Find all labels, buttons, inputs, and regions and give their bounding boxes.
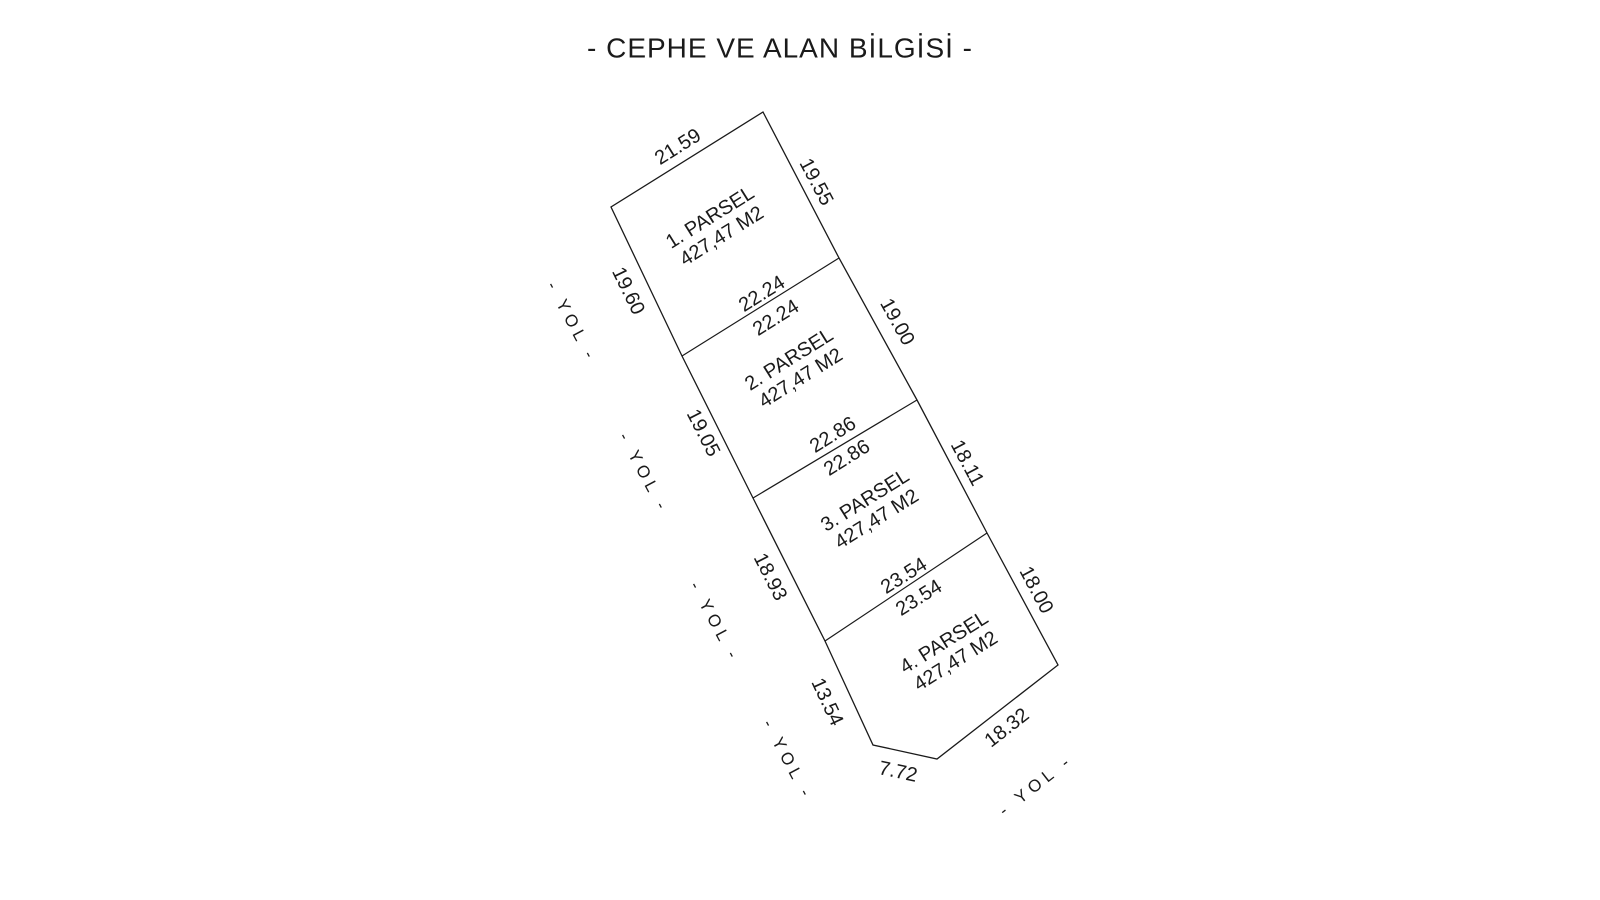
edge-right-3-length: 18.11 xyxy=(946,436,988,489)
road-label-left-2: - YOL - xyxy=(615,429,673,516)
edge-top-length: 21.59 xyxy=(651,124,705,169)
edge-right-4-length: 18.00 xyxy=(1015,563,1058,618)
parcel-plan-drawing: - CEPHE VE ALAN BİLGİSİ - 1. PARSEL 427,… xyxy=(0,0,1600,900)
page-title: - CEPHE VE ALAN BİLGİSİ - xyxy=(587,33,973,64)
road-label-bottom-right: - YOL - xyxy=(995,750,1077,820)
edge-bottom-length: 7.72 xyxy=(877,757,920,787)
road-label-bottom-left: - YOL - xyxy=(759,716,817,803)
road-label-left-3: - YOL - xyxy=(686,578,744,665)
edge-left-2-length: 19.05 xyxy=(682,406,724,461)
parcel-4-label-group: 4. PARSEL 427,47 M2 xyxy=(896,607,1004,697)
parcel-2-label-group: 2. PARSEL 427,47 M2 xyxy=(741,324,849,414)
edge-right-1-length: 19.55 xyxy=(795,155,838,210)
road-label-left-1: - YOL - xyxy=(543,278,601,365)
edge-left-4-length: 13.54 xyxy=(806,675,847,730)
parcel-1-label-group: 1. PARSEL 427,47 M2 xyxy=(662,182,770,272)
cadastral-plan-page: - CEPHE VE ALAN BİLGİSİ - 1. PARSEL 427,… xyxy=(0,0,1600,900)
edge-left-3-length: 18.93 xyxy=(749,550,791,605)
edge-bottom-right-length: 18.32 xyxy=(981,704,1034,752)
edge-right-2-length: 19.00 xyxy=(875,295,919,349)
